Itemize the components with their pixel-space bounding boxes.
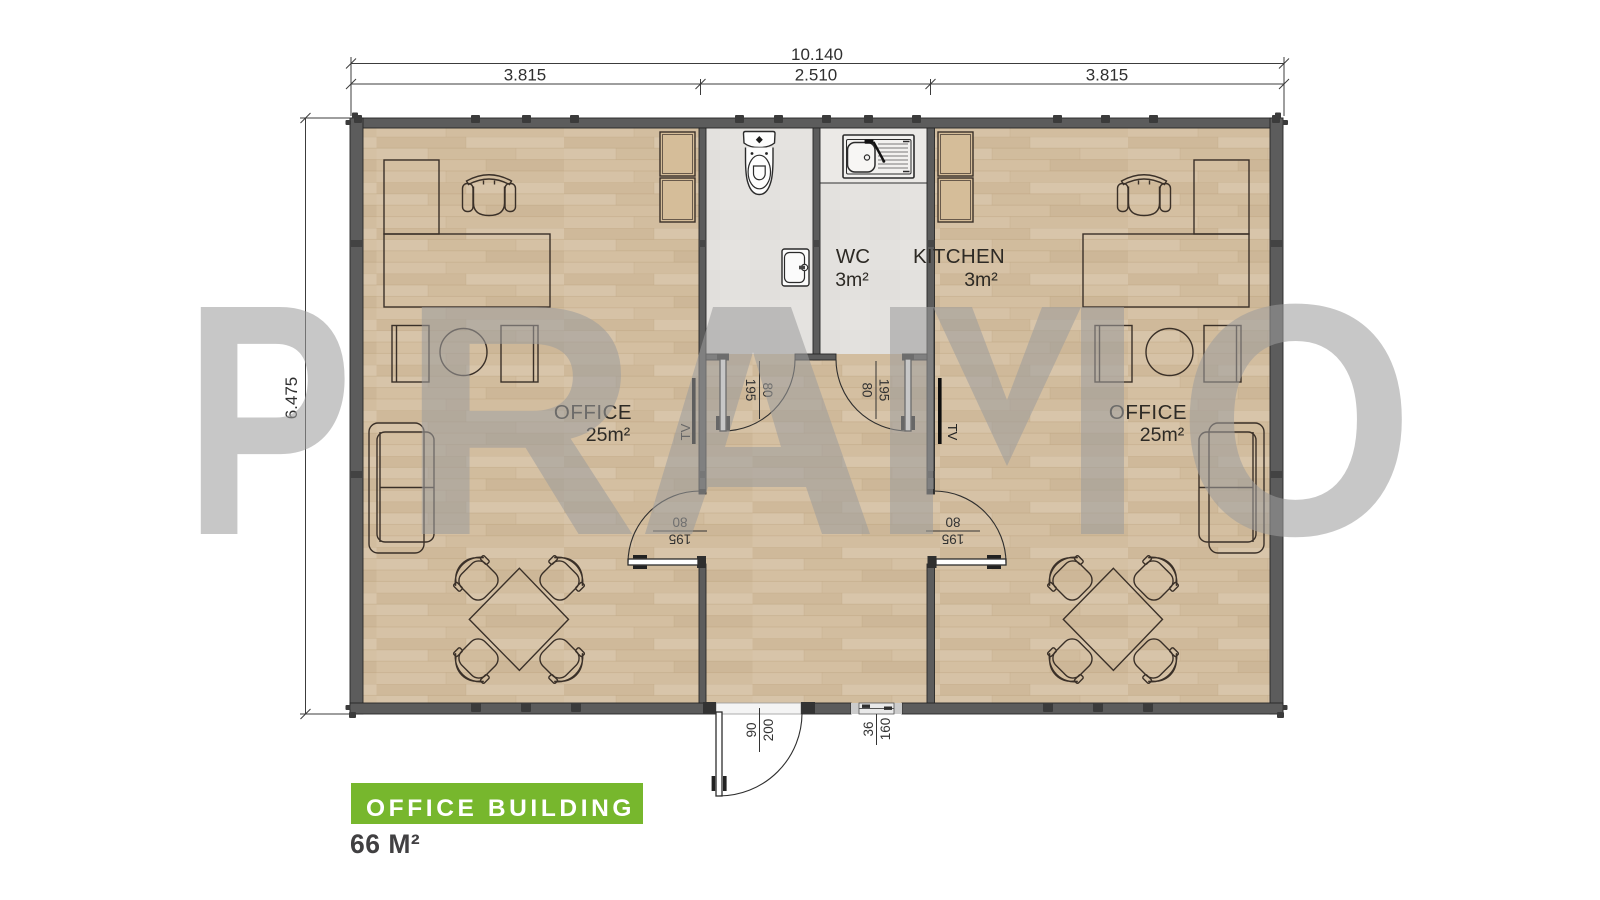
svg-text:66 M²: 66 M² <box>350 829 420 859</box>
svg-text:O: O <box>1177 236 1414 605</box>
svg-text:80: 80 <box>860 382 875 397</box>
svg-text:10.140: 10.140 <box>791 45 843 64</box>
svg-text:P: P <box>184 236 353 605</box>
svg-text:TV: TV <box>945 424 960 441</box>
svg-text:KITCHEN: KITCHEN <box>913 245 1005 268</box>
svg-text:3.815: 3.815 <box>504 66 547 85</box>
svg-text:90: 90 <box>744 722 759 737</box>
svg-text:R: R <box>400 237 640 605</box>
svg-text:195: 195 <box>743 379 758 402</box>
svg-text:3m²: 3m² <box>835 269 869 291</box>
svg-text:195: 195 <box>877 379 892 402</box>
svg-text:3.815: 3.815 <box>1086 66 1129 85</box>
svg-text:2.510: 2.510 <box>795 66 838 85</box>
svg-text:160: 160 <box>878 718 893 741</box>
svg-text:OFFICE BUILDING: OFFICE BUILDING <box>366 795 635 822</box>
svg-text:80: 80 <box>945 515 960 530</box>
svg-text:3m²: 3m² <box>964 269 998 291</box>
svg-text:195: 195 <box>942 532 965 547</box>
svg-text:WC: WC <box>836 245 870 268</box>
svg-text:200: 200 <box>761 719 776 742</box>
svg-text:36: 36 <box>861 721 876 736</box>
